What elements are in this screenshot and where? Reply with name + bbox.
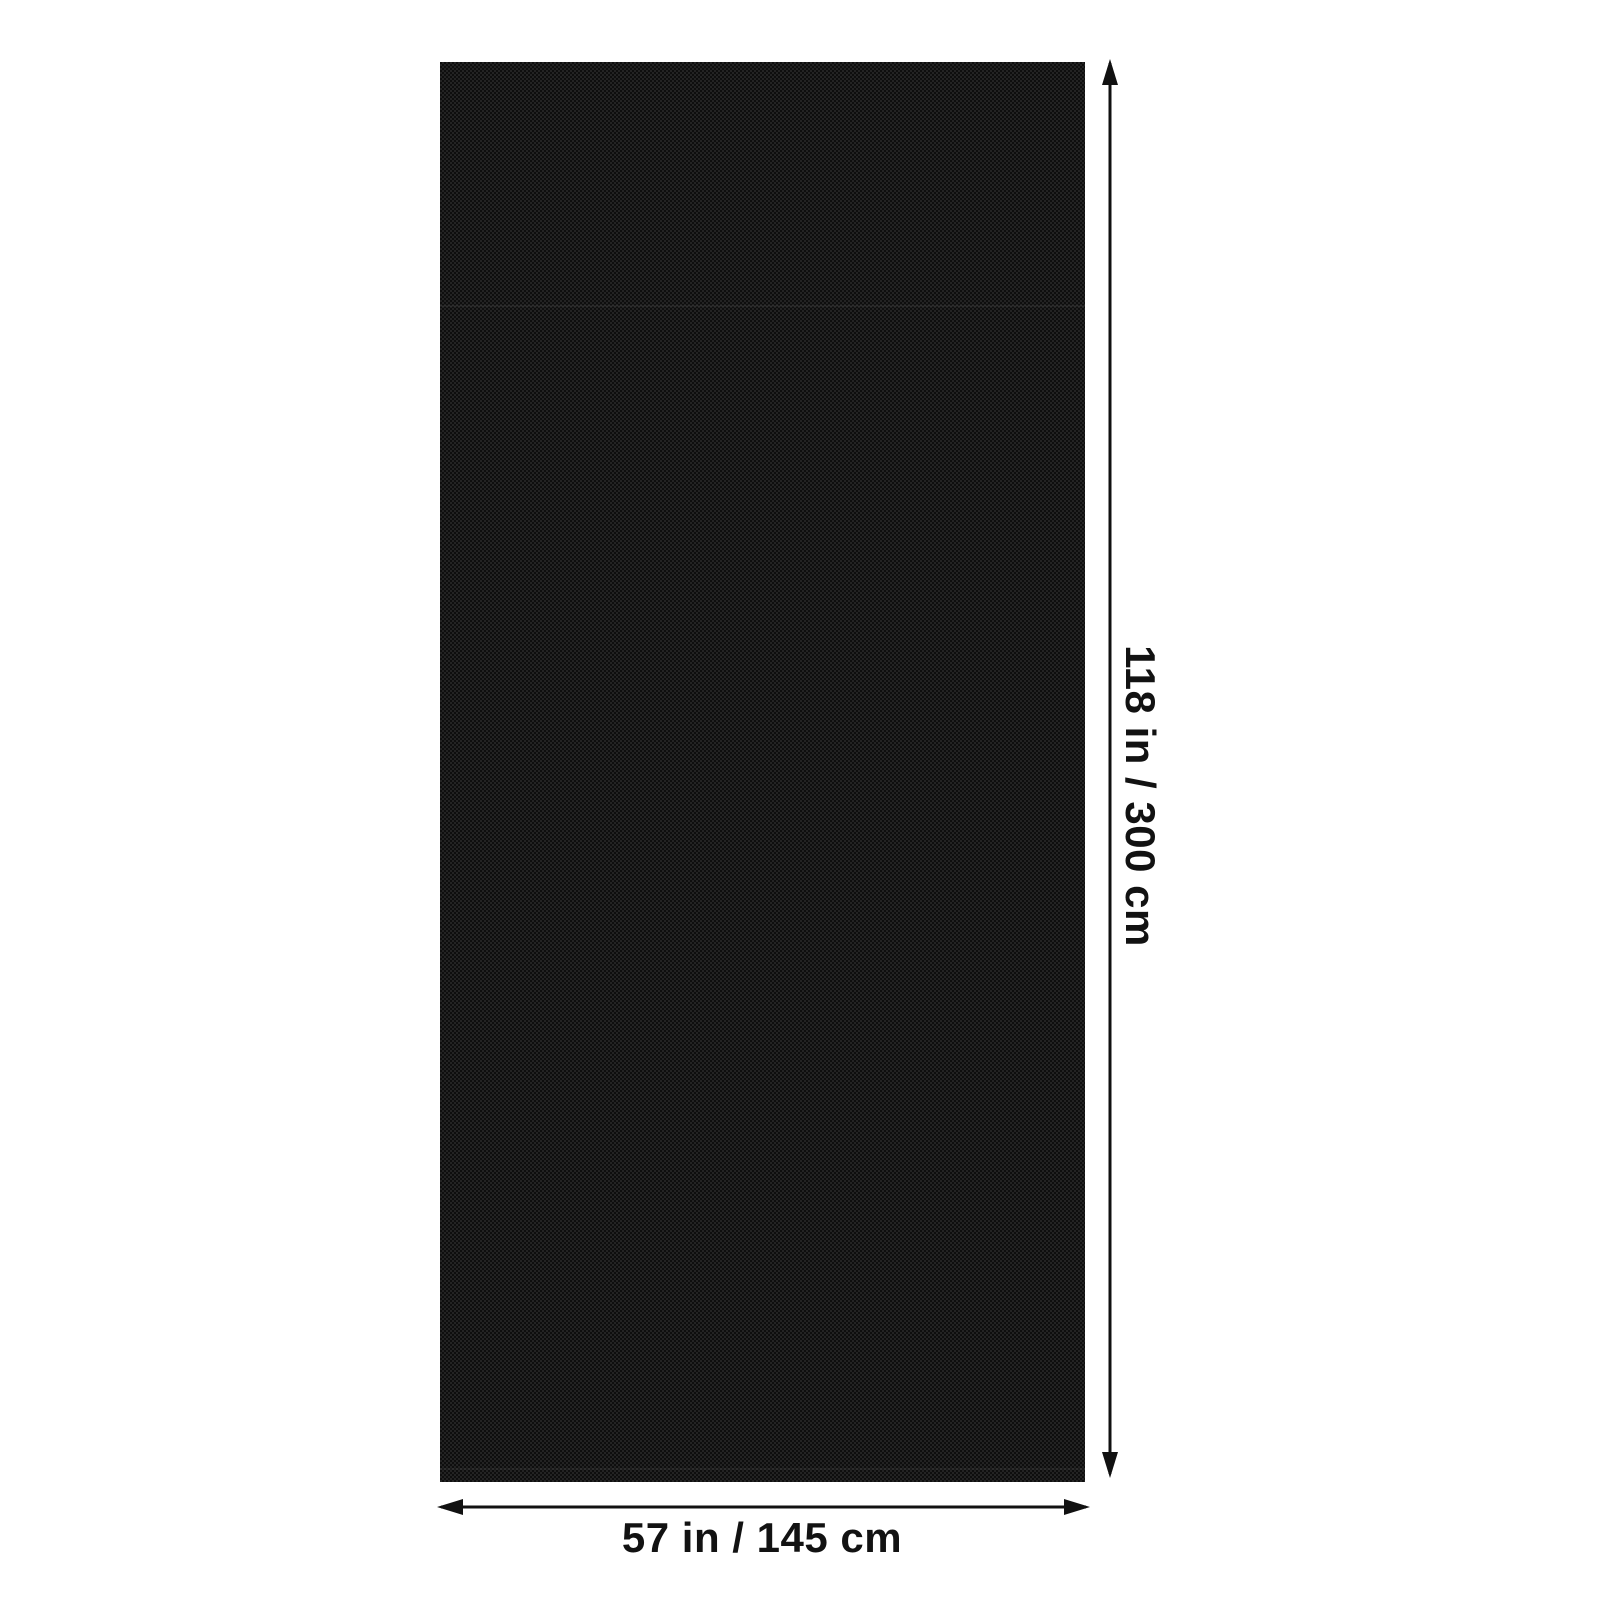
width-dimension-arrow <box>437 1499 1090 1515</box>
width-arrow-line <box>441 1506 1086 1509</box>
height-dimension-label: 118 in / 300 cm <box>1119 645 1161 947</box>
fabric-panel <box>440 62 1085 1482</box>
height-dimension-arrow <box>1102 59 1118 1478</box>
arrow-down-icon <box>1102 1452 1118 1478</box>
fabric-seam-line <box>440 305 1085 307</box>
fabric-fold-highlight <box>440 1468 1085 1470</box>
arrow-right-icon <box>1064 1499 1090 1515</box>
height-arrow-line <box>1109 63 1112 1474</box>
product-dimension-diagram: 118 in / 300 cm 57 in / 145 cm <box>0 0 1600 1600</box>
width-dimension-label: 57 in / 145 cm <box>622 1517 902 1559</box>
